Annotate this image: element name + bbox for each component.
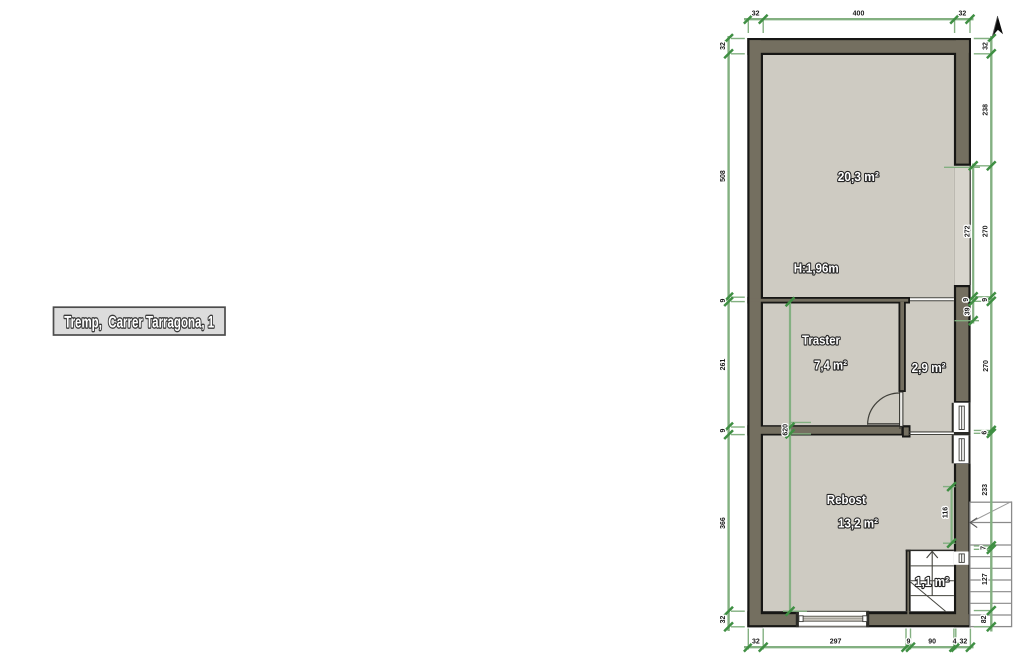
svg-text:32: 32 xyxy=(752,11,760,18)
svg-text:9: 9 xyxy=(963,298,970,302)
svg-text:32: 32 xyxy=(720,42,727,50)
svg-text:2,9 m²: 2,9 m² xyxy=(912,361,946,375)
svg-text:508: 508 xyxy=(720,170,727,182)
svg-text:32: 32 xyxy=(720,616,727,624)
svg-text:13,2 m²: 13,2 m² xyxy=(838,517,878,531)
svg-text:7: 7 xyxy=(980,546,987,550)
svg-text:20,3 m²: 20,3 m² xyxy=(838,170,879,184)
svg-text:238: 238 xyxy=(983,104,990,116)
svg-text:366: 366 xyxy=(720,517,727,529)
svg-text:270: 270 xyxy=(983,360,990,372)
svg-text:90: 90 xyxy=(928,638,936,645)
svg-text:9: 9 xyxy=(720,429,727,433)
svg-text:272: 272 xyxy=(965,225,972,237)
svg-text:127: 127 xyxy=(982,573,989,585)
svg-text:Tremp, Carrer Tarragona, 1: Tremp, Carrer Tarragona, 1 xyxy=(64,313,214,332)
svg-text:270: 270 xyxy=(983,225,990,237)
svg-text:297: 297 xyxy=(830,638,842,645)
svg-text:233: 233 xyxy=(982,484,989,496)
svg-text:1,1 m²: 1,1 m² xyxy=(915,575,949,589)
svg-text:4: 4 xyxy=(953,638,957,645)
svg-text:32: 32 xyxy=(959,11,967,18)
svg-text:32: 32 xyxy=(960,638,968,645)
svg-text:116: 116 xyxy=(942,507,949,518)
svg-text:32: 32 xyxy=(752,638,760,645)
svg-text:Rebost: Rebost xyxy=(827,493,867,507)
svg-text:400: 400 xyxy=(853,11,865,18)
svg-text:Traster: Traster xyxy=(802,333,840,347)
svg-text:9: 9 xyxy=(907,638,911,645)
svg-text:620: 620 xyxy=(782,424,789,436)
svg-text:9: 9 xyxy=(720,299,727,303)
svg-text:H:1,96m: H:1,96m xyxy=(794,262,839,276)
svg-text:7,4 m²: 7,4 m² xyxy=(814,359,847,373)
svg-text:9: 9 xyxy=(982,298,989,302)
svg-text:39: 39 xyxy=(965,307,972,315)
svg-text:32: 32 xyxy=(983,42,990,50)
svg-text:6: 6 xyxy=(981,431,988,435)
svg-text:261: 261 xyxy=(720,359,727,371)
svg-text:82: 82 xyxy=(981,615,988,623)
